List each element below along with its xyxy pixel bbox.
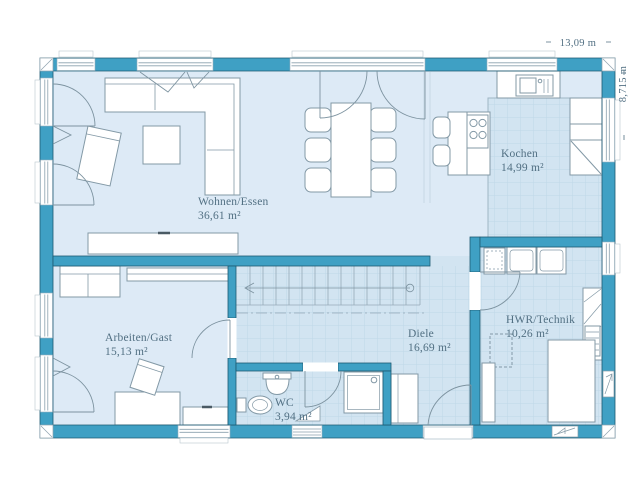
utility-door-opening xyxy=(470,272,481,310)
room-area-kochen: 14,99 m² xyxy=(501,162,544,174)
window-living-top-1 xyxy=(57,59,95,71)
wall-utility-top xyxy=(480,237,602,247)
room-label-diele: Diele xyxy=(408,328,434,340)
kitchen-wall-units xyxy=(570,98,602,175)
wall-office-lower xyxy=(228,358,236,425)
entrance-mat xyxy=(424,427,472,439)
window-utility xyxy=(603,242,615,275)
heat-pump-unit xyxy=(548,340,595,422)
room-label-kochen: Kochen xyxy=(501,148,538,160)
office-sideboard xyxy=(183,407,228,425)
window-living-top-2 xyxy=(137,59,213,71)
room-label-arbeiten-gast: Arbeiten/Gast xyxy=(105,332,173,344)
wall-shower-side xyxy=(383,371,391,425)
wall-office-upper xyxy=(228,266,236,318)
dining-table xyxy=(331,103,371,197)
wall-wc-top-left xyxy=(236,363,303,371)
room-label-wc: WC xyxy=(275,397,294,409)
floor-plan-canvas: Wohnen/Essen 36,61 m² Kochen 14,99 m² Ar… xyxy=(0,0,640,480)
wall-living-hall xyxy=(53,256,430,266)
terrace-door-living-1 xyxy=(41,78,53,126)
window-kitchen xyxy=(487,59,557,71)
room-label-hwr-technik: HWR/Technik xyxy=(506,314,575,326)
tv-sideboard xyxy=(88,233,238,254)
desk xyxy=(115,392,180,425)
office-door-opening xyxy=(228,318,237,358)
utility-cabinet xyxy=(482,363,495,422)
guest-sofa xyxy=(60,266,120,297)
dimension-height: 8,715 m xyxy=(618,66,629,103)
wall-wc-top-right xyxy=(338,363,391,371)
room-area-wohnen-essen: 36,61 m² xyxy=(198,210,241,222)
wall-utility-upper xyxy=(470,237,480,272)
room-area-hwr-technik: 10,26 m² xyxy=(506,328,549,340)
room-area-wc: 3,94 m² xyxy=(275,411,312,423)
kitchen-counter xyxy=(497,71,560,98)
window-office-south xyxy=(178,426,230,438)
terrace-double-door xyxy=(290,59,425,71)
coffee-table xyxy=(143,126,180,164)
washer-dryer xyxy=(484,247,566,274)
wall-shelf xyxy=(127,268,230,281)
room-area-diele: 16,69 m² xyxy=(408,342,451,354)
dimension-width: 13,09 m xyxy=(560,38,597,49)
terrace-door-living-2 xyxy=(41,160,53,205)
window-office xyxy=(41,293,53,338)
toilet xyxy=(237,396,272,414)
wc-door-opening xyxy=(303,363,338,372)
kitchen-island xyxy=(448,112,490,175)
wall-utility-lower xyxy=(470,310,480,425)
shower xyxy=(344,372,383,413)
window-kitchen-east xyxy=(603,98,615,162)
room-area-arbeiten-gast: 15,13 m² xyxy=(105,346,148,358)
wardrobe xyxy=(391,374,418,423)
floor-plan-page: Wohnen/Essen 36,61 m² Kochen 14,99 m² Ar… xyxy=(0,0,640,480)
terrace-door-office xyxy=(41,355,53,412)
room-label-wohnen-essen: Wohnen/Essen xyxy=(198,196,269,208)
